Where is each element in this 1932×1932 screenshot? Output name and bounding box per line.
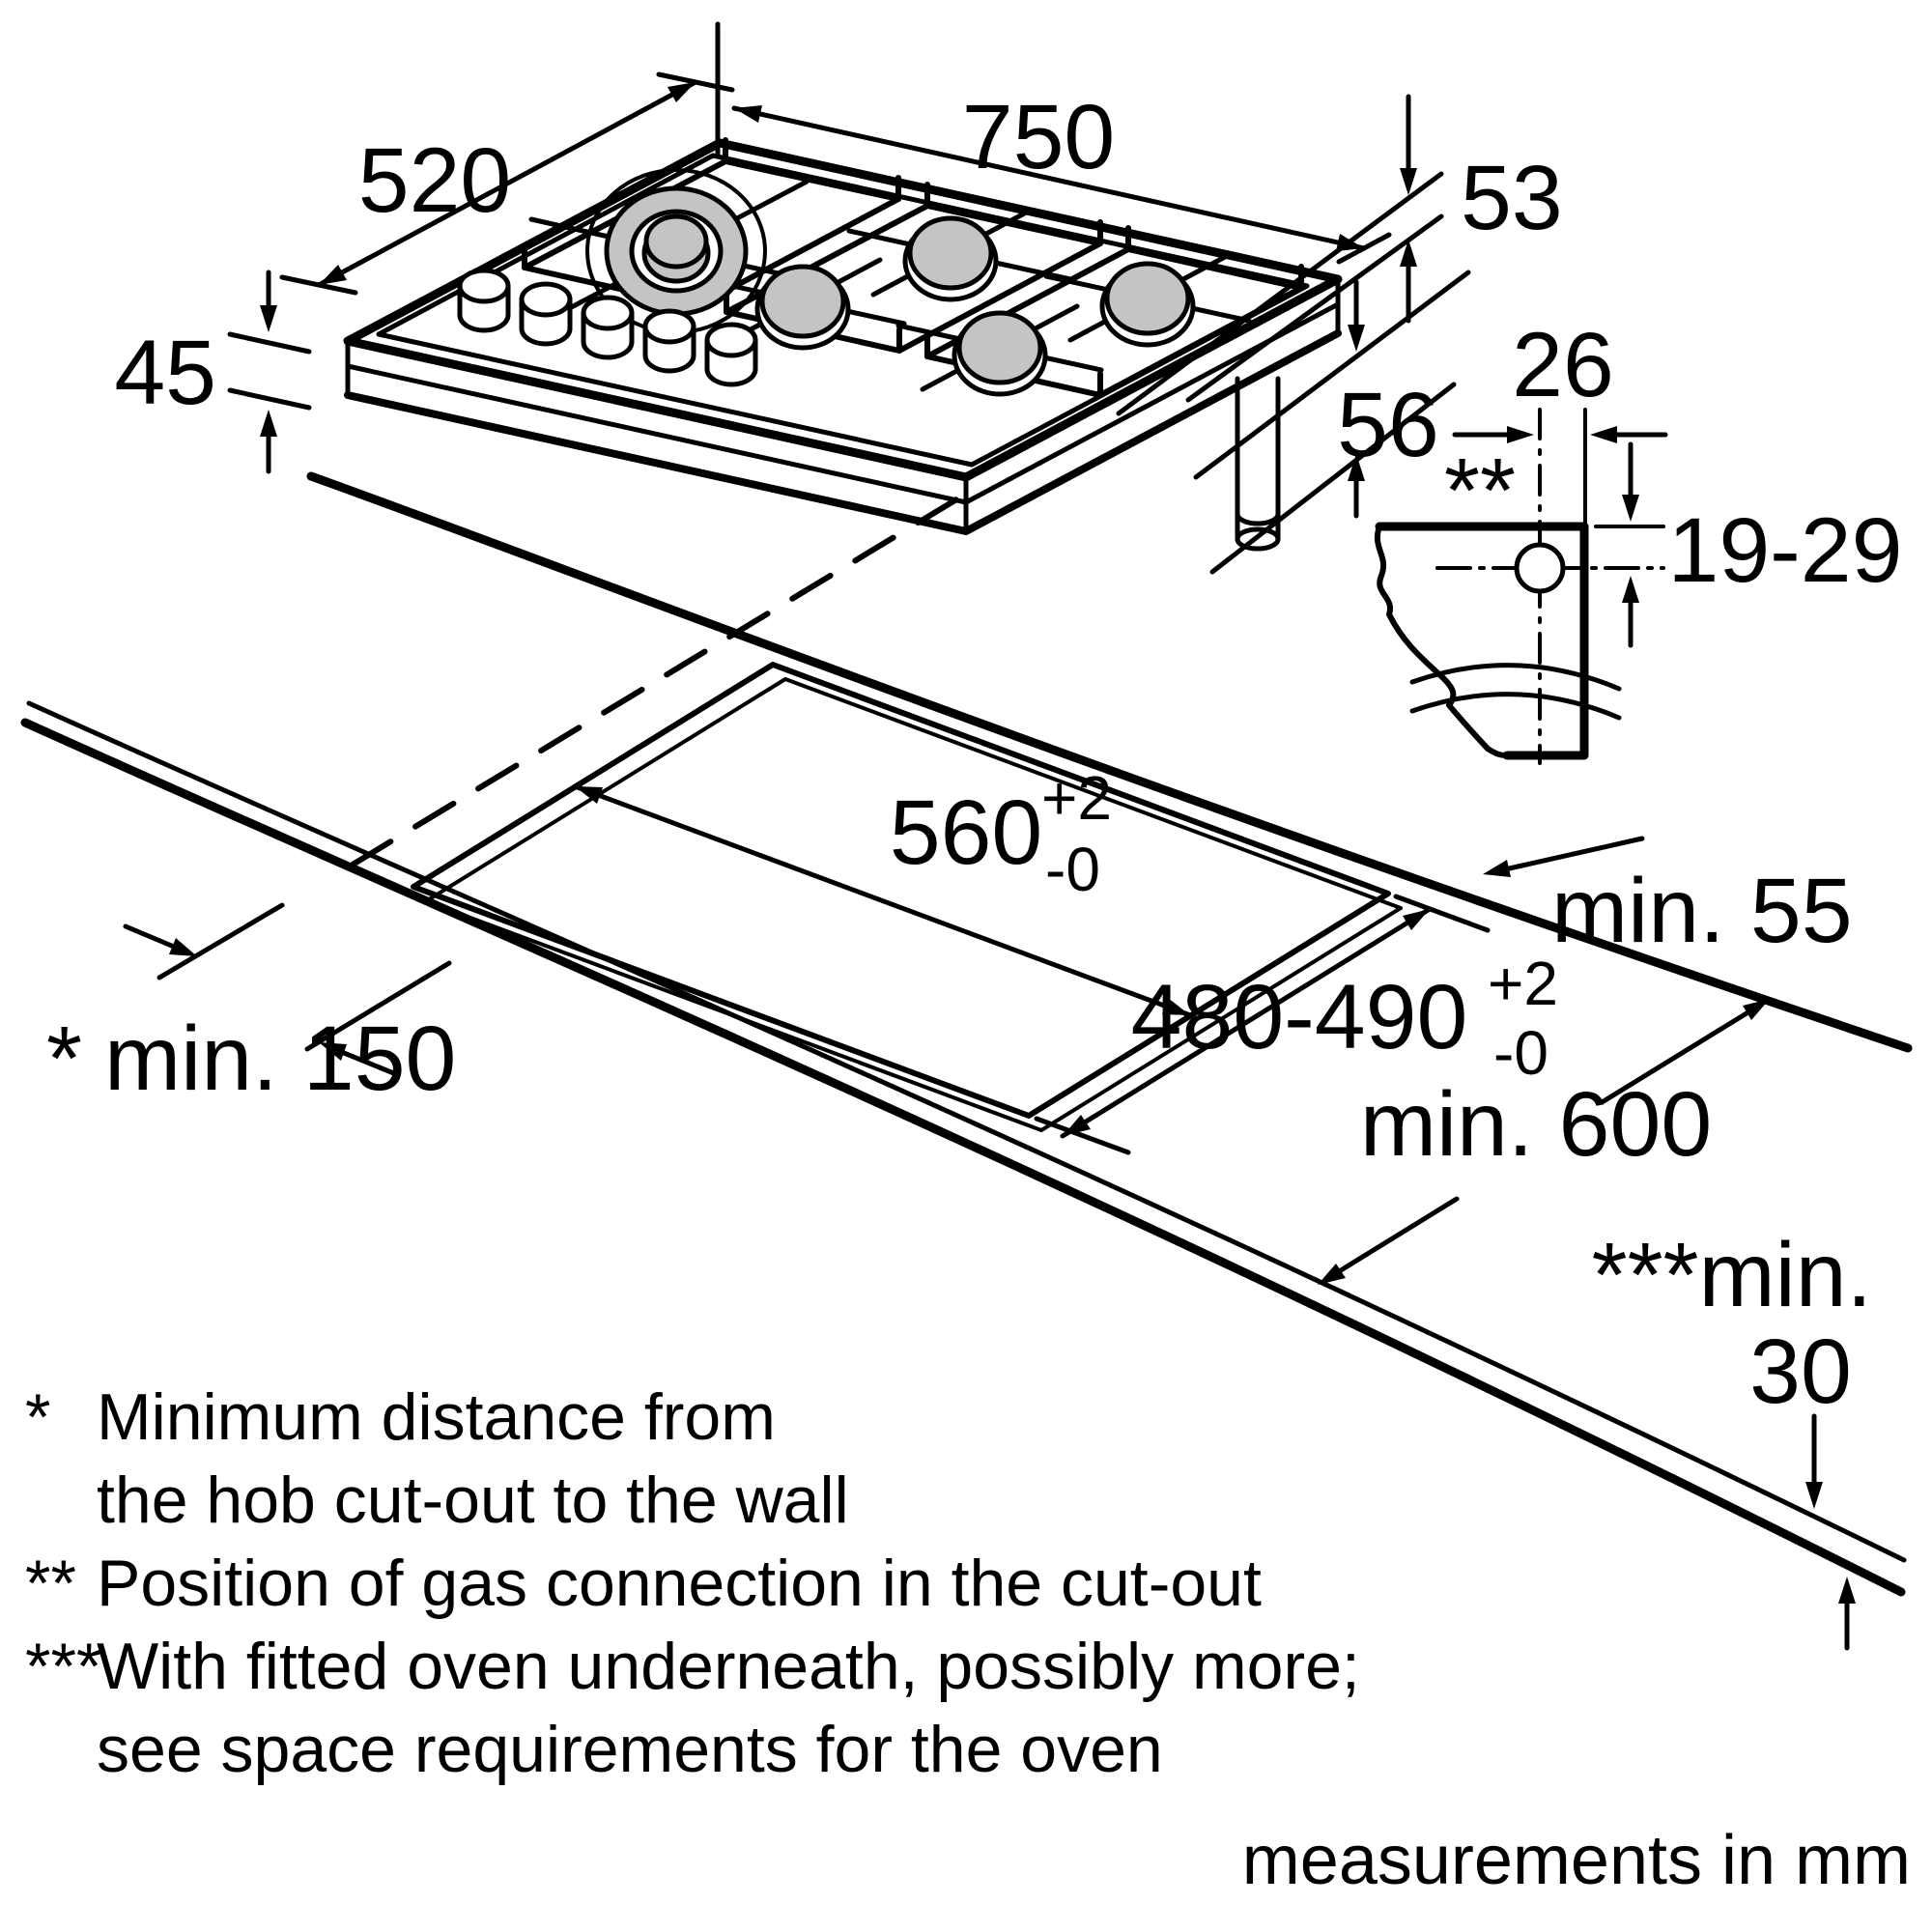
footnote-1-line2: the hob cut-out to the wall	[97, 1463, 849, 1537]
dim-cutout-width-tol-minus: -0	[1045, 835, 1100, 904]
dim-front-clearance-prefix: ***min.	[1592, 1224, 1872, 1326]
dim-cutout-depth-label: 480-490	[1131, 966, 1468, 1068]
dim-rear-clearance: min. 55	[1483, 838, 1853, 962]
dim-gas-offset-53-label: 53	[1461, 147, 1563, 249]
diagram-canvas: 560 +2 -0 480-490 +2 -0 * min. 150	[0, 0, 1932, 1932]
dim-worktop-depth-label: min. 600	[1360, 1073, 1712, 1176]
footnote-1-marker: *	[25, 1380, 50, 1454]
dim-hob-width-label: 750	[962, 86, 1116, 188]
dim-hob-depth-label: 520	[358, 129, 512, 232]
footnote-3-marker: ***	[25, 1630, 101, 1703]
footnote-3-line2: see space requirements for the oven	[97, 1713, 1163, 1786]
gas-position-marker: **	[1444, 440, 1516, 542]
footnote-3-line1: With fitted oven underneath, possibly mo…	[97, 1630, 1360, 1703]
dim-hole-offset-26-label: 26	[1512, 314, 1614, 416]
dim-cutout-width: 560 +2 -0	[575, 763, 1190, 1015]
dim-gas-drop-56-label: 56	[1337, 374, 1439, 476]
burner-small-front-middle	[757, 267, 848, 348]
installation-diagram: 560 +2 -0 480-490 +2 -0 * min. 150	[0, 0, 1932, 1932]
burner-small-rear-right	[1102, 264, 1193, 345]
dim-rear-clearance-label: min. 55	[1551, 860, 1853, 962]
footnote-2-line1: Position of gas connection in the cut-ou…	[97, 1547, 1262, 1620]
dim-wall-clearance: * min. 150	[46, 905, 456, 1110]
dim-hob-height: 45	[114, 272, 309, 471]
gas-hole	[1517, 545, 1563, 591]
dim-cutout-depth-tol-plus: +2	[1488, 949, 1558, 1018]
dim-hole-depth-19-29: 19-29	[1596, 444, 1902, 645]
footnote-1-line1: Minimum distance from	[97, 1380, 776, 1454]
dim-wall-clearance-star: *	[46, 1008, 82, 1110]
burner-small-rear-middle	[905, 218, 996, 299]
dim-front-clearance: ***min. 30	[1592, 1224, 1872, 1648]
dim-cutout-width-label: 560	[890, 781, 1043, 884]
dim-front-clearance-label: 30	[1749, 1321, 1852, 1423]
gas-connection-detail: 26 ** 19-29	[1378, 314, 1903, 763]
unit-note: measurements in mm	[1242, 1822, 1911, 1899]
hob-projection-dashed-line	[353, 488, 976, 865]
burner-small-front-right	[954, 313, 1045, 394]
hob-drawing: 750 520 45 53	[114, 24, 1562, 572]
footnote-2-marker: **	[25, 1547, 76, 1620]
detail-profile-broken-edge	[1378, 526, 1507, 755]
dim-hole-depth-label: 19-29	[1668, 499, 1903, 602]
dim-wall-clearance-label: min. 150	[104, 1008, 456, 1110]
dim-cutout-width-tol-plus: +2	[1041, 763, 1112, 833]
dim-hob-height-label: 45	[114, 322, 216, 424]
